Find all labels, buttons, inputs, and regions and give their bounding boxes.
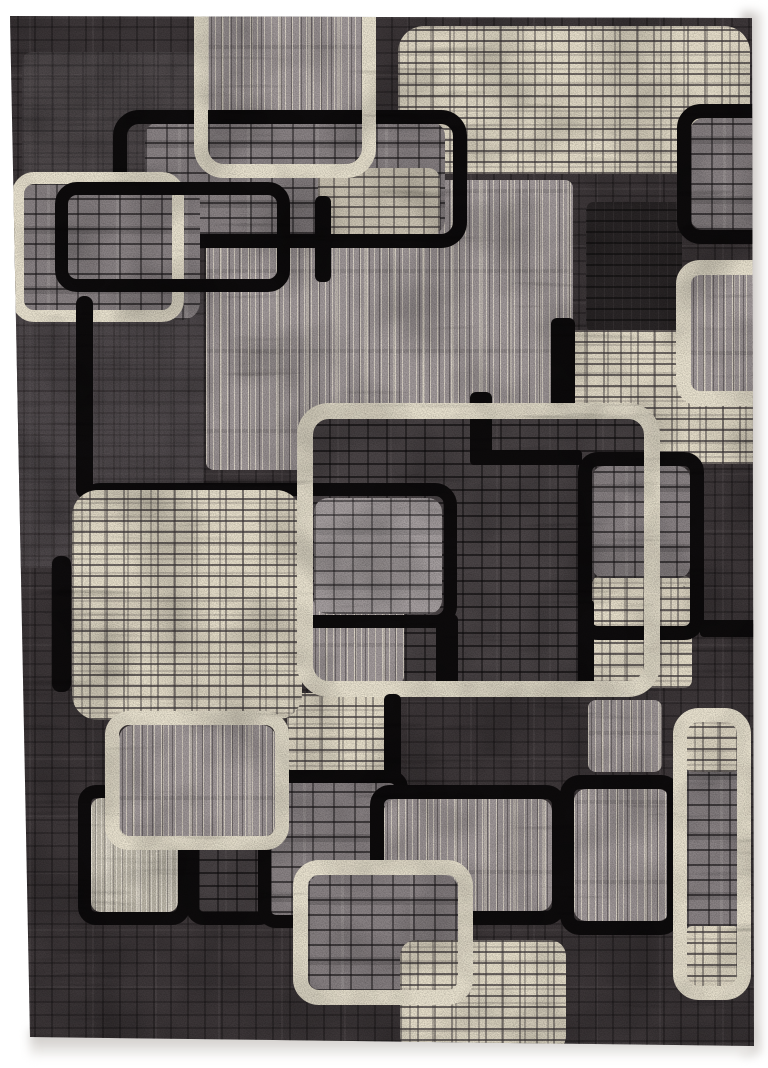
cream-outline-top xyxy=(194,0,376,178)
black-bar-a xyxy=(315,196,331,282)
dark-patch-right xyxy=(586,202,682,332)
rug xyxy=(0,0,768,1068)
black-outline-top-left xyxy=(55,182,290,292)
ivory-square-big-left xyxy=(72,490,302,720)
black-bar-left-lower xyxy=(52,556,71,692)
ivory-patch-center-left xyxy=(287,693,393,773)
striped-patch-below-center xyxy=(588,700,662,772)
cream-outline-right-column xyxy=(673,708,751,1000)
black-bar-center-a xyxy=(551,318,575,414)
cream-outline-center-big xyxy=(297,403,660,697)
black-outline-bottom-right xyxy=(560,775,681,935)
cream-outline-bottom-center xyxy=(293,860,473,1005)
black-bar-left-upper xyxy=(76,296,93,498)
rug-product-photo xyxy=(0,0,768,1068)
cream-outline-bottom-left xyxy=(105,711,289,850)
